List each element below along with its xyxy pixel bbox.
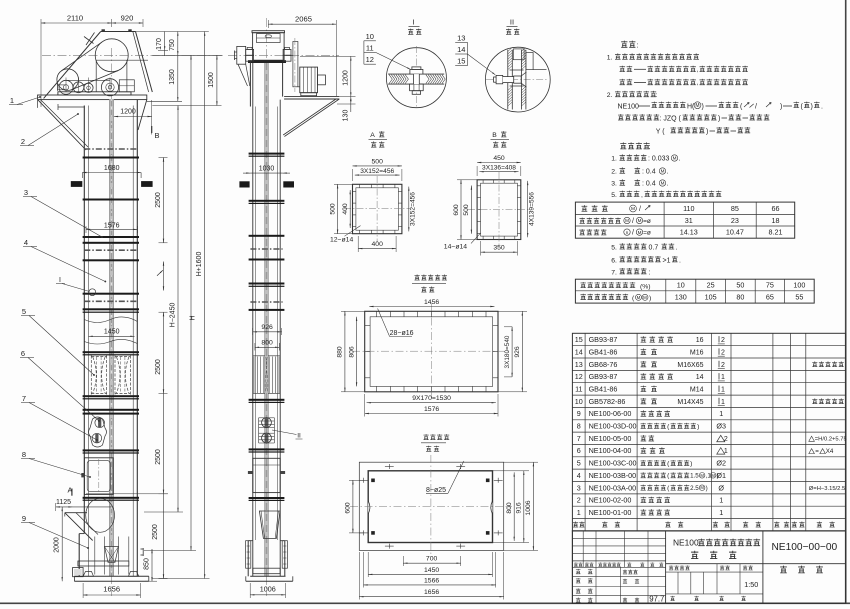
svg-text:5.: 5. [611, 245, 617, 252]
svg-text:GB5782-86: GB5782-86 [589, 397, 626, 406]
svg-text:9X170=1530: 9X170=1530 [412, 395, 451, 402]
svg-text:12: 12 [575, 372, 583, 381]
svg-text:NE100-03D-00: NE100-03D-00 [589, 422, 637, 431]
svg-text:3.: 3. [611, 181, 617, 188]
svg-text:4: 4 [24, 238, 28, 247]
svg-text:1.: 1. [611, 156, 617, 163]
svg-text:1350: 1350 [169, 69, 176, 85]
svg-text:8−ø25: 8−ø25 [426, 487, 446, 494]
svg-text:8: 8 [577, 422, 581, 431]
svg-text:M: M [643, 295, 647, 300]
svg-text:105: 105 [705, 293, 717, 302]
svg-text:50: 50 [736, 281, 744, 290]
svg-text:500: 500 [463, 204, 470, 216]
svg-text:1656: 1656 [424, 589, 439, 596]
svg-text:2: 2 [21, 137, 25, 146]
svg-text:1006: 1006 [525, 500, 532, 515]
svg-text:X4: X4 [826, 448, 834, 455]
svg-text:): ) [706, 128, 708, 135]
svg-text:926: 926 [514, 346, 521, 358]
svg-text:M: M [711, 473, 715, 478]
svg-text:1:50: 1:50 [744, 580, 758, 589]
svg-text:1: 1 [721, 399, 725, 406]
svg-text:1656: 1656 [103, 585, 120, 594]
svg-text:: 0.4: : 0.4 [642, 181, 656, 188]
svg-text:(%): (%) [640, 283, 651, 290]
svg-text:1125: 1125 [56, 499, 71, 506]
svg-text:13: 13 [575, 360, 583, 369]
svg-text:NE100-06-00: NE100-06-00 [589, 409, 632, 418]
svg-text:25: 25 [707, 281, 715, 290]
svg-text:5: 5 [577, 459, 581, 468]
svg-text:920: 920 [121, 14, 134, 23]
svg-text:): ) [780, 104, 782, 111]
svg-text:M: M [673, 156, 677, 161]
svg-text:10: 10 [677, 281, 685, 290]
svg-text:2: 2 [721, 337, 725, 344]
svg-text:110: 110 [683, 204, 694, 213]
svg-text:GB41-86: GB41-86 [589, 385, 618, 394]
svg-text:/: / [639, 206, 641, 213]
svg-text:: 0.4: : 0.4 [642, 169, 656, 176]
svg-text:23: 23 [731, 216, 739, 225]
svg-text:2065: 2065 [295, 15, 312, 24]
svg-text:M14X45: M14X45 [677, 399, 703, 406]
svg-text:B: B [492, 132, 497, 139]
svg-text:400: 400 [342, 203, 349, 215]
svg-text:GB68-76: GB68-76 [589, 360, 618, 369]
svg-text:16: 16 [696, 337, 704, 344]
svg-text:NE100−00−00: NE100−00−00 [771, 542, 837, 553]
svg-text:>1: >1 [663, 257, 671, 264]
svg-text:100: 100 [793, 281, 805, 290]
svg-text:NE100: NE100 [673, 538, 699, 548]
svg-text::: : [649, 269, 651, 276]
svg-text:31: 31 [685, 216, 693, 225]
svg-text:10: 10 [366, 32, 374, 41]
svg-text:2000: 2000 [54, 537, 61, 553]
svg-text:3X180=540: 3X180=540 [504, 335, 511, 368]
svg-text:Ø=H−3.15/2.5: Ø=H−3.15/2.5 [809, 486, 845, 492]
svg-text:2.5: 2.5 [690, 485, 699, 492]
svg-text:130: 130 [342, 110, 349, 122]
svg-text:806: 806 [348, 346, 355, 358]
svg-text:350: 350 [493, 245, 505, 252]
svg-text:1: 1 [719, 496, 723, 505]
svg-text:926: 926 [261, 324, 273, 331]
svg-text:): ) [718, 115, 720, 122]
svg-text:750: 750 [169, 39, 176, 51]
svg-text:.: . [679, 156, 681, 163]
svg-text:2.: 2. [611, 169, 617, 176]
svg-text:2.: 2. [607, 92, 613, 99]
svg-text:85: 85 [731, 204, 739, 213]
svg-text:28−ø16: 28−ø16 [390, 330, 414, 337]
svg-text:1006: 1006 [260, 585, 276, 594]
svg-text:1: 1 [721, 374, 725, 381]
svg-text:H: H [190, 315, 197, 320]
svg-text:1.5: 1.5 [690, 473, 699, 480]
svg-text:5: 5 [22, 307, 26, 316]
svg-text:2500: 2500 [155, 192, 162, 208]
svg-text:9: 9 [577, 409, 581, 418]
svg-text:A: A [370, 132, 375, 139]
svg-text:=ø: =ø [643, 218, 651, 225]
svg-text:3: 3 [24, 188, 28, 197]
svg-text:3X152=456: 3X152=456 [410, 192, 417, 226]
svg-text:.: . [679, 257, 681, 264]
svg-text:916: 916 [516, 502, 523, 514]
svg-text:B: B [155, 131, 160, 140]
svg-text:1576: 1576 [104, 222, 120, 229]
svg-text:1: 1 [721, 387, 725, 394]
svg-text:170: 170 [156, 38, 163, 50]
svg-text:NE100-01-00: NE100-01-00 [589, 508, 632, 517]
svg-text:1566: 1566 [424, 577, 439, 584]
svg-text::: : [656, 92, 658, 99]
svg-text::: : [648, 142, 650, 151]
svg-text:9: 9 [22, 514, 26, 523]
svg-text:3X152=456: 3X152=456 [360, 168, 394, 175]
svg-text:2110: 2110 [67, 14, 83, 23]
svg-text:3: 3 [577, 483, 581, 492]
svg-text:M: M [661, 169, 665, 174]
svg-text:2500: 2500 [155, 449, 162, 465]
svg-text:/: / [632, 218, 634, 225]
svg-text:1: 1 [577, 508, 581, 517]
svg-text:1456: 1456 [424, 299, 439, 306]
svg-text:500: 500 [372, 158, 384, 165]
svg-text:500: 500 [329, 203, 336, 215]
svg-text:): ) [702, 104, 704, 111]
svg-text:15: 15 [575, 335, 583, 344]
svg-text:14−ø14: 14−ø14 [444, 244, 467, 251]
svg-text:12−ø14: 12−ø14 [330, 237, 353, 244]
svg-text:0.7: 0.7 [649, 245, 659, 252]
svg-text:NE100-03A-00: NE100-03A-00 [589, 483, 637, 492]
svg-text:GB93-87: GB93-87 [589, 335, 618, 344]
svg-text:.: . [667, 181, 669, 188]
svg-text:1450: 1450 [104, 328, 120, 335]
svg-text:75: 75 [766, 281, 774, 290]
svg-text:7: 7 [577, 434, 581, 443]
svg-text:=H/0.2+5.75: =H/0.2+5.75 [815, 437, 847, 443]
svg-text:,: , [641, 192, 643, 199]
svg-text:7: 7 [22, 394, 26, 403]
svg-text:: 0.033: : 0.033 [648, 156, 670, 163]
svg-text:): ) [706, 485, 708, 492]
svg-text:=: = [815, 448, 819, 455]
svg-text:M: M [625, 218, 629, 223]
svg-text:66: 66 [772, 204, 780, 213]
svg-text:.: . [821, 104, 823, 111]
svg-text:NE100-03C-00: NE100-03C-00 [589, 459, 637, 468]
svg-text:400: 400 [372, 241, 384, 248]
svg-text:NE100-02-00: NE100-02-00 [589, 496, 632, 505]
svg-text:10.47: 10.47 [726, 228, 744, 237]
svg-text:Ø1: Ø1 [716, 471, 726, 480]
svg-text:): ) [649, 295, 651, 302]
svg-text:2: 2 [721, 349, 725, 356]
svg-text:1500: 1500 [208, 72, 215, 88]
svg-text:1576: 1576 [424, 406, 439, 413]
svg-text:6.: 6. [611, 257, 617, 264]
svg-text:6: 6 [21, 349, 25, 358]
svg-text:10: 10 [575, 397, 583, 406]
svg-text:M16X65: M16X65 [677, 362, 703, 369]
svg-text:130: 130 [675, 293, 687, 302]
svg-text:M: M [700, 473, 704, 478]
svg-text:.: . [676, 245, 678, 252]
svg-text:2500: 2500 [155, 359, 162, 375]
svg-text:8: 8 [22, 450, 26, 459]
svg-text:11: 11 [575, 385, 582, 394]
svg-text:8.21: 8.21 [769, 228, 783, 237]
svg-text:1: 1 [10, 96, 14, 105]
svg-text:600: 600 [345, 502, 352, 514]
svg-text:18: 18 [772, 216, 780, 225]
svg-text:2: 2 [577, 496, 581, 505]
svg-text:: JZQ (: : JZQ ( [660, 115, 682, 122]
svg-text:1680: 1680 [104, 165, 120, 172]
svg-text:M: M [700, 485, 704, 490]
svg-text:14: 14 [457, 45, 465, 54]
svg-text:NE100-05-00: NE100-05-00 [589, 434, 632, 443]
svg-text:4: 4 [577, 471, 581, 480]
svg-text:55: 55 [795, 293, 803, 302]
svg-text:15: 15 [457, 57, 465, 66]
svg-text:GB41-86: GB41-86 [589, 347, 618, 356]
svg-text:2500: 2500 [152, 524, 159, 540]
svg-text:12: 12 [366, 55, 374, 64]
svg-text:1.: 1. [607, 54, 613, 61]
svg-text:3X136=408: 3X136=408 [482, 165, 516, 172]
svg-text:II: II [297, 433, 301, 440]
svg-text:I: I [412, 18, 414, 27]
svg-text:/: / [755, 104, 757, 111]
svg-text:M: M [695, 103, 699, 109]
svg-text:I: I [59, 277, 61, 284]
svg-text:14: 14 [575, 347, 583, 356]
svg-text:M: M [661, 181, 665, 186]
svg-text:1: 1 [719, 409, 723, 418]
svg-text:1030: 1030 [259, 166, 275, 173]
svg-text:II: II [510, 18, 514, 27]
svg-text:M: M [637, 295, 641, 300]
svg-text:NE100: NE100 [618, 104, 640, 111]
svg-text:2: 2 [721, 362, 725, 369]
svg-text:M: M [638, 230, 642, 235]
svg-text:M14: M14 [690, 387, 704, 394]
svg-text:GB93-87: GB93-87 [589, 372, 618, 381]
svg-text:NE100-04-00: NE100-04-00 [589, 446, 632, 455]
svg-text:M16: M16 [690, 349, 704, 356]
svg-text:.: . [667, 169, 669, 176]
svg-text:,: , [696, 67, 698, 74]
svg-text:11: 11 [366, 44, 374, 53]
svg-text:Ø3: Ø3 [716, 422, 726, 431]
svg-text:): ) [811, 104, 813, 111]
svg-text:): ) [697, 423, 699, 430]
svg-text:4X139=556: 4X139=556 [528, 192, 535, 226]
svg-text:97.7: 97.7 [649, 594, 664, 603]
svg-text:2: 2 [724, 436, 728, 443]
svg-text:14.13: 14.13 [680, 228, 698, 237]
svg-text:14: 14 [696, 374, 704, 381]
svg-text::: : [636, 41, 638, 50]
svg-text:600: 600 [453, 204, 460, 216]
svg-text:880: 880 [337, 346, 344, 358]
svg-text:M: M [631, 206, 635, 212]
svg-text:Ø: Ø [718, 483, 724, 492]
svg-text:M: M [638, 218, 642, 223]
svg-text:=ø: =ø [643, 230, 651, 237]
svg-text:1450: 1450 [424, 567, 439, 574]
svg-text:1200: 1200 [120, 109, 136, 116]
svg-text:n: n [626, 230, 629, 235]
svg-text:H+1600: H+1600 [196, 252, 203, 277]
svg-text:5.: 5. [611, 192, 617, 199]
svg-text:H(: H( [687, 104, 695, 111]
svg-text:Y (: Y ( [656, 128, 665, 135]
svg-text:Ø2: Ø2 [716, 459, 726, 468]
svg-text:800: 800 [261, 340, 273, 347]
svg-text:6: 6 [577, 446, 581, 455]
svg-text:/: / [632, 230, 634, 237]
svg-text:7.: 7. [611, 269, 617, 276]
svg-text:): ) [690, 460, 692, 467]
svg-text:1: 1 [719, 508, 723, 517]
svg-text:850: 850 [144, 558, 151, 570]
svg-text:,: , [696, 80, 698, 87]
svg-text:1: 1 [724, 448, 728, 455]
svg-text:NE100-03B-00: NE100-03B-00 [589, 471, 637, 480]
svg-text:700: 700 [426, 556, 438, 563]
svg-text:H−2450: H−2450 [170, 303, 177, 328]
svg-text:800: 800 [506, 502, 513, 514]
svg-text::: : [695, 192, 697, 199]
svg-text:80: 80 [736, 293, 744, 302]
svg-text:1200: 1200 [342, 70, 349, 86]
svg-text:450: 450 [493, 155, 505, 162]
svg-text:13: 13 [457, 33, 465, 42]
svg-text:65: 65 [766, 293, 774, 302]
